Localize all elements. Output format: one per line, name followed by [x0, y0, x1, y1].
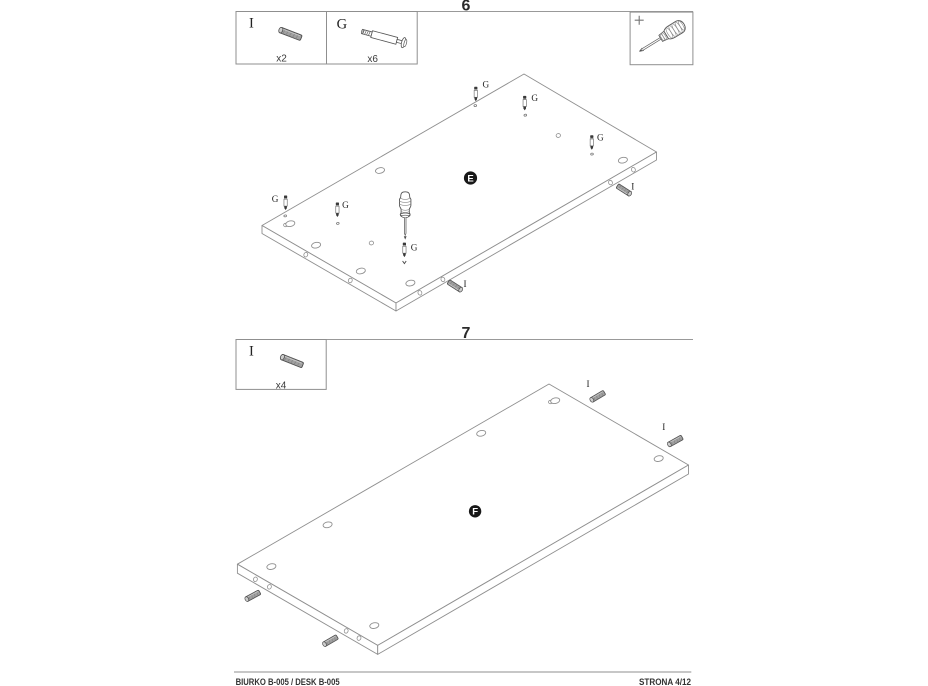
svg-text:I: I — [662, 422, 665, 432]
svg-text:G: G — [483, 80, 490, 90]
svg-text:G: G — [411, 242, 418, 252]
svg-text:I: I — [249, 15, 254, 31]
svg-text:6: 6 — [462, 0, 471, 15]
svg-text:BIURKO B-005 / DESK B-005: BIURKO B-005 / DESK B-005 — [236, 677, 341, 686]
svg-text:G: G — [337, 16, 348, 32]
svg-text:x4: x4 — [276, 380, 287, 391]
svg-text:STRONA 4/12: STRONA 4/12 — [639, 677, 691, 686]
svg-text:x6: x6 — [367, 54, 378, 65]
svg-text:G: G — [597, 133, 604, 143]
svg-text:G: G — [342, 200, 349, 210]
svg-text:I: I — [631, 182, 634, 192]
svg-text:E: E — [467, 173, 473, 184]
svg-text:I: I — [249, 344, 254, 360]
svg-text:I: I — [464, 279, 467, 289]
svg-text:G: G — [272, 194, 279, 204]
svg-text:I: I — [587, 379, 590, 389]
svg-text:x2: x2 — [276, 54, 287, 65]
svg-text:F: F — [472, 507, 478, 518]
svg-text:G: G — [531, 93, 538, 103]
